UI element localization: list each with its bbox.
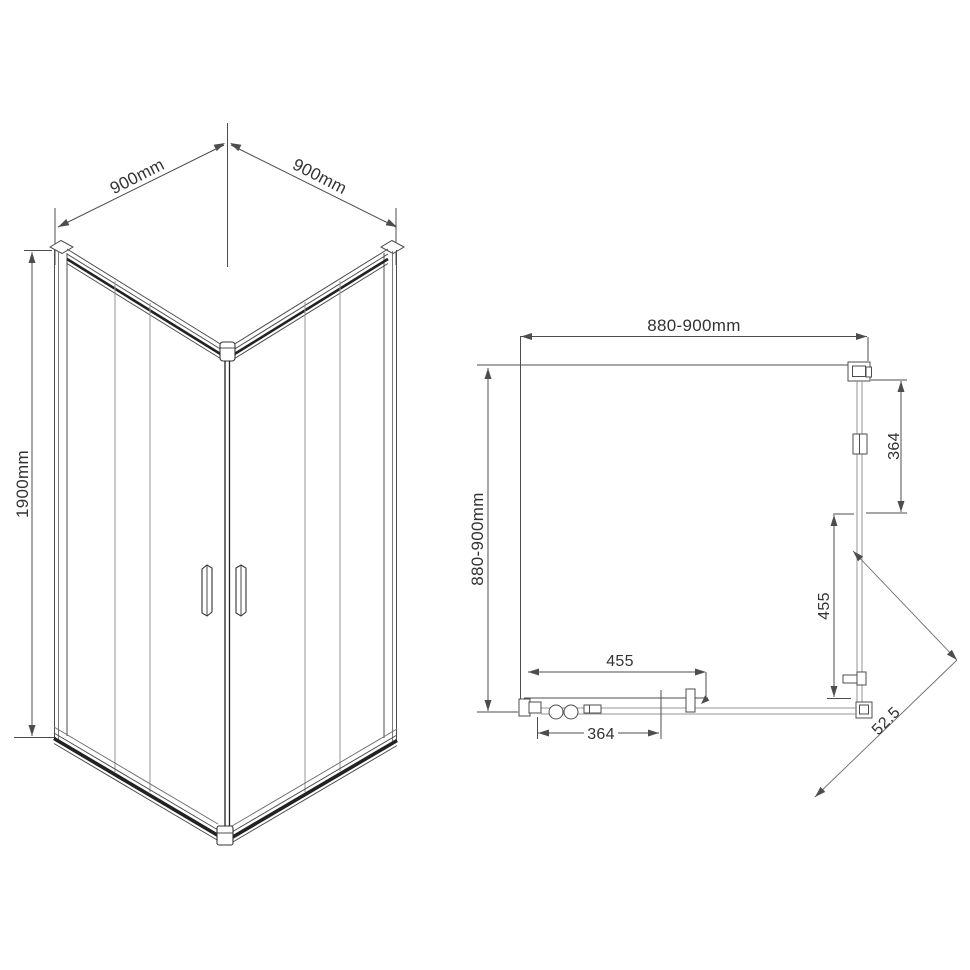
iso-left-wall-profile xyxy=(50,241,73,741)
drawing-page: 900mm 900mm 1900mm xyxy=(0,0,970,970)
iso-top-corner-connector xyxy=(220,342,235,361)
iso-right-wall-profile xyxy=(381,241,404,743)
plan-bottom-door-bracket xyxy=(686,689,695,712)
plan-right-glass xyxy=(843,381,872,718)
plan-bottom-glass xyxy=(519,689,856,719)
iso-bottom-corner-connector xyxy=(217,826,233,845)
plan-side-door-label: 455 xyxy=(816,592,833,620)
isometric-view: 900mm 900mm 1900mm xyxy=(13,123,404,845)
plan-dim-side-fixed: 364 xyxy=(866,380,907,513)
plan-side-fixed-label: 364 xyxy=(886,432,903,460)
iso-dim-width-right: 900mm xyxy=(230,143,397,265)
plan-dim-overall-width: 880-900mm xyxy=(521,316,868,361)
iso-dim-width-left: 900mm xyxy=(55,143,225,265)
iso-width-right-label: 900mm xyxy=(290,155,350,198)
iso-bottom-rail-left xyxy=(54,727,218,841)
plan-bottom-left-corner xyxy=(519,699,530,716)
plan-wall-profile xyxy=(848,362,872,381)
iso-right-door-handle xyxy=(236,565,246,616)
iso-left-door-handle xyxy=(202,565,212,616)
plan-overall-width-label: 880-900mm xyxy=(647,316,740,335)
iso-height-label: 1900mm xyxy=(13,450,32,518)
plan-front-fixed-label: 364 xyxy=(587,726,615,743)
plan-right-door-handle xyxy=(843,675,857,683)
technical-drawing: 900mm 900mm 1900mm xyxy=(0,0,970,970)
plan-bottom-door-handle xyxy=(584,705,601,713)
iso-top-rail-right xyxy=(233,249,388,360)
plan-front-door-label: 455 xyxy=(606,653,634,670)
plan-dim-corner-entry: 52.5 xyxy=(815,551,957,797)
plan-corner-entry-label: 52.5 xyxy=(869,704,904,739)
plan-roller-2 xyxy=(564,705,578,719)
plan-dim-side-door: 455 xyxy=(816,514,854,699)
iso-width-left-label: 900mm xyxy=(107,155,167,198)
plan-roller-1 xyxy=(549,705,563,719)
plan-dim-front-door: 455 xyxy=(528,653,710,704)
iso-dim-height: 1900mm xyxy=(13,251,56,738)
plan-view: 880-900mm 880-900mm xyxy=(468,316,957,797)
plan-dim-overall-depth: 880-900mm xyxy=(468,368,518,712)
iso-top-rail-left xyxy=(67,249,222,360)
plan-overall-depth-label: 880-900mm xyxy=(468,492,487,585)
iso-bottom-rail-right xyxy=(232,729,397,843)
